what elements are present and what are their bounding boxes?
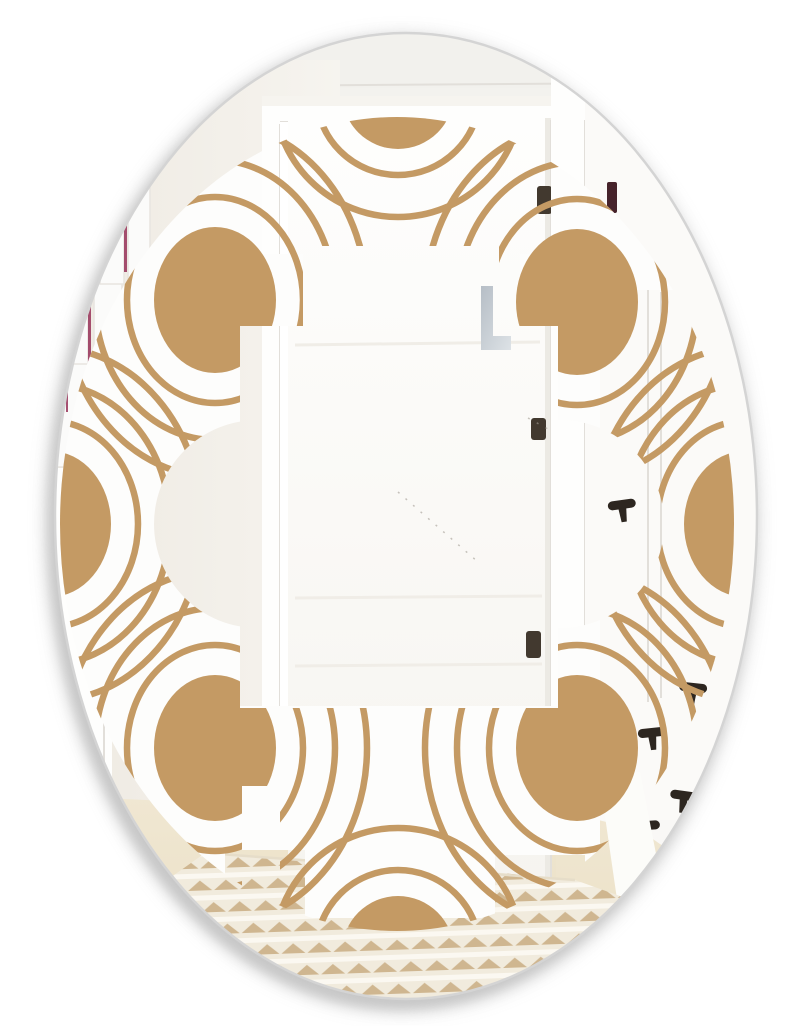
frame-board [100, 232, 124, 284]
frame-accent-line [88, 118, 91, 278]
mirror-reflection [0, 0, 800, 1026]
frame-accent-line [20, 396, 23, 554]
ceiling-reflection [0, 0, 800, 88]
oval-mirror-photo [0, 0, 800, 1026]
product-photo: Oval frameless wall mirror with printed … [0, 0, 800, 1026]
frost-pattern-band [60, 117, 734, 931]
frame-accent-line [124, 152, 127, 272]
